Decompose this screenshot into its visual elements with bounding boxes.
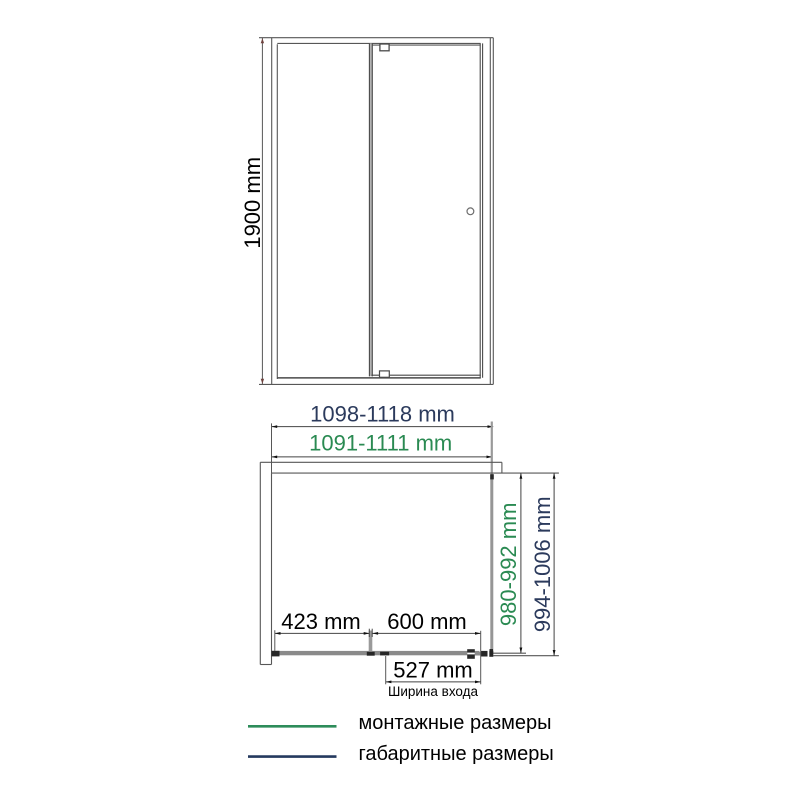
svg-text:423 mm: 423 mm [281, 609, 360, 634]
svg-text:монтажные размеры: монтажные размеры [359, 712, 552, 734]
svg-text:600 mm: 600 mm [387, 609, 466, 634]
svg-text:1098-1118 mm: 1098-1118 mm [310, 402, 455, 427]
svg-text:габаритные размеры: габаритные размеры [359, 743, 554, 765]
svg-text:Ширина входа: Ширина входа [388, 684, 479, 699]
svg-text:527 mm: 527 mm [393, 657, 472, 682]
svg-text:994-1006 mm: 994-1006 mm [530, 496, 555, 632]
svg-text:1091-1111 mm: 1091-1111 mm [309, 430, 452, 455]
svg-text:1900 mm: 1900 mm [240, 157, 265, 249]
svg-text:980-992 mm: 980-992 mm [496, 503, 521, 627]
